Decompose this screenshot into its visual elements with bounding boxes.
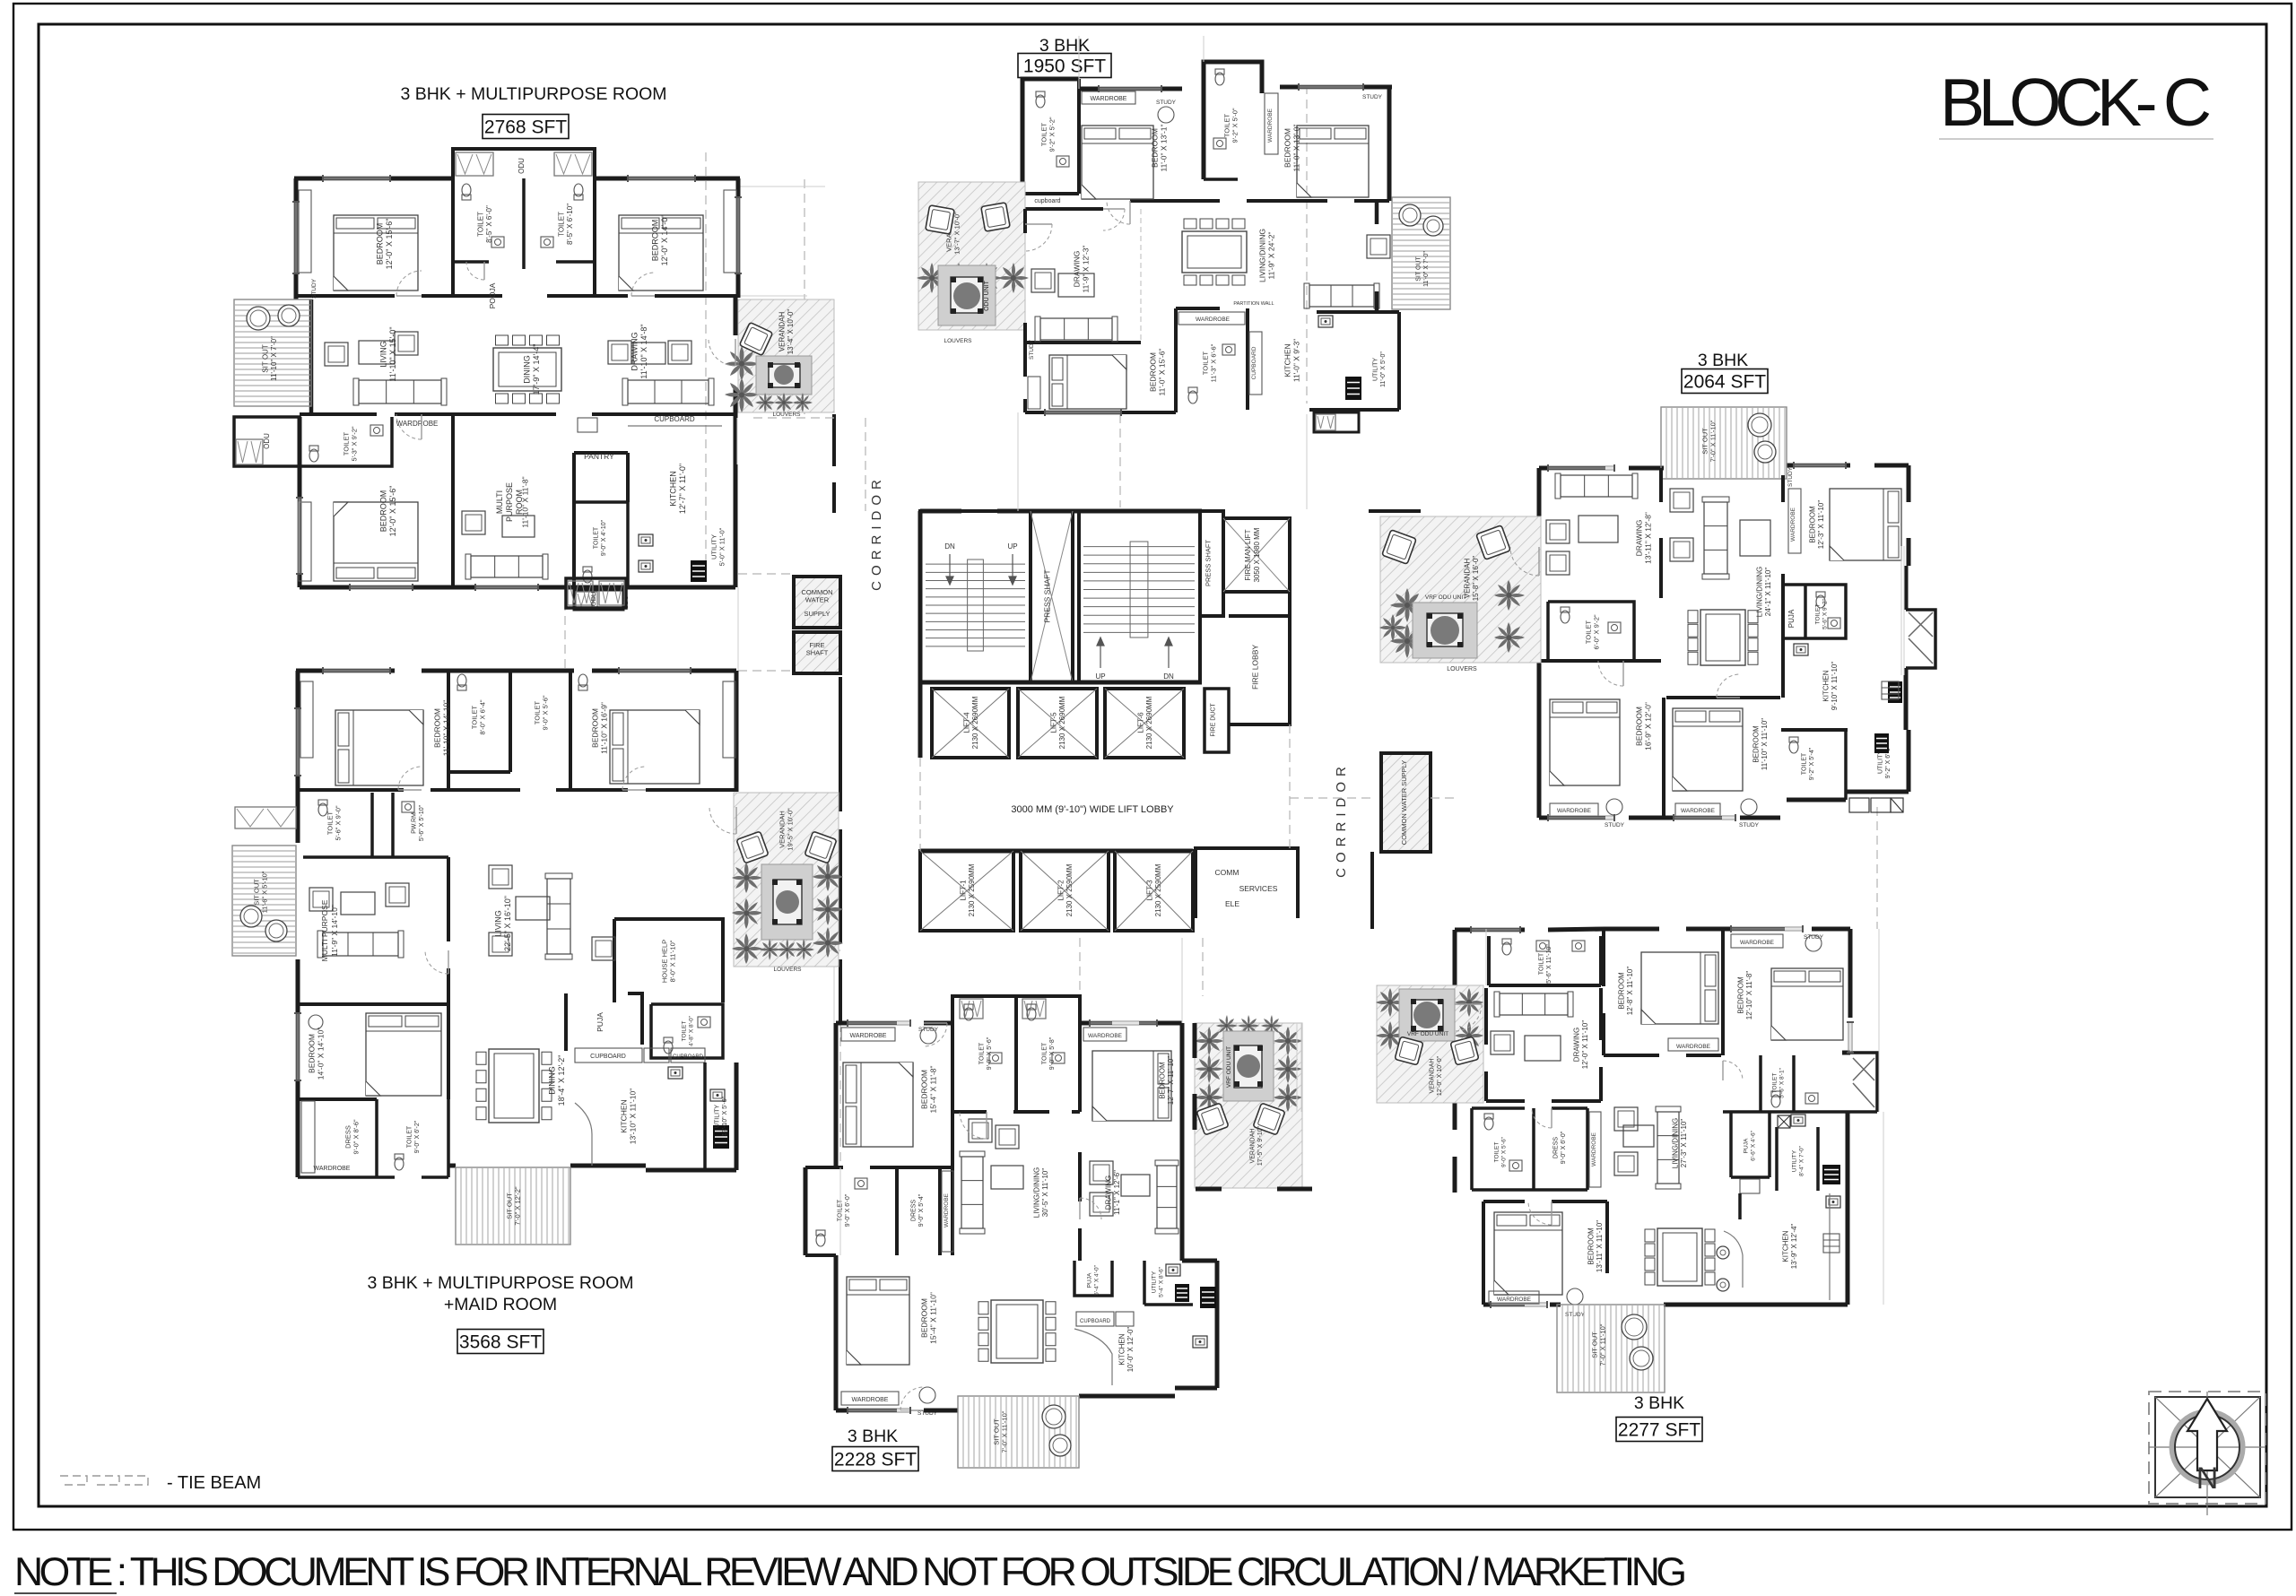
svg-text:WARDROBE: WARDROBE	[314, 1166, 351, 1172]
svg-text:11'-10" X 7'-0": 11'-10" X 7'-0"	[270, 336, 278, 381]
svg-text:3 BHK: 3 BHK	[848, 1427, 898, 1446]
svg-text:CUPBOARD: CUPBOARD	[1080, 1319, 1111, 1324]
svg-text:9'-0" X 5'-6": 9'-0" X 5'-6"	[1501, 1136, 1508, 1167]
svg-text:7'-0" X 11'-10": 7'-0" X 11'-10"	[1001, 1410, 1009, 1453]
svg-text:TOILET: TOILET	[343, 432, 351, 456]
svg-text:17'-5" X 9'-10": 17'-5" X 9'-10"	[1257, 1125, 1264, 1166]
svg-text:7'-0" X 11'-10": 7'-0" X 11'-10"	[1599, 1323, 1607, 1366]
svg-text:BEDROOM: BEDROOM	[1159, 1062, 1167, 1099]
svg-text:TOILET: TOILET	[407, 1125, 413, 1148]
svg-text:CUPBOARD: CUPBOARD	[1251, 346, 1257, 379]
svg-text:12'-7" X 11'-0": 12'-7" X 11'-0"	[678, 464, 687, 514]
svg-text:BEDROOM: BEDROOM	[651, 220, 660, 262]
svg-text:5'-3" X 9'-2": 5'-3" X 9'-2"	[351, 426, 359, 461]
svg-text:BEDROOM: BEDROOM	[1737, 976, 1745, 1014]
svg-text:1950 SFT: 1950 SFT	[1023, 56, 1106, 76]
svg-text:13'-10" X 5'-0": 13'-10" X 5'-0"	[722, 1096, 728, 1136]
svg-text:DRAWING: DRAWING	[631, 332, 639, 370]
svg-text:FIRE MAN LIFT: FIRE MAN LIFT	[1244, 529, 1252, 580]
svg-text:LIFT-3: LIFT-3	[1146, 880, 1154, 901]
svg-text:WARDROBE: WARDROBE	[1676, 1044, 1711, 1050]
svg-text:PUJA: PUJA	[1787, 609, 1796, 628]
svg-text:WARDROBE: WARDROBE	[944, 1193, 950, 1227]
svg-text:13'-10" X 11'-10": 13'-10" X 11'-10"	[629, 1089, 638, 1145]
svg-text:ODU UNIT: ODU UNIT	[984, 280, 990, 311]
svg-text:9'-10" X 11'-10": 9'-10" X 11'-10"	[1831, 662, 1839, 711]
svg-text:DRESS: DRESS	[911, 1200, 918, 1221]
svg-text:PRESS SHAFT: PRESS SHAFT	[1043, 569, 1052, 622]
svg-text:2130 X 2590MM: 2130 X 2590MM	[1065, 863, 1074, 916]
svg-text:8'-5" X 6'-0": 8'-5" X 6'-0"	[485, 205, 493, 243]
svg-text:2130 X 2590MM: 2130 X 2590MM	[1154, 863, 1162, 916]
svg-text:POOJA: POOJA	[488, 282, 497, 308]
svg-text:BEDROOM: BEDROOM	[433, 708, 442, 748]
svg-text:9'-2" X 5'-0": 9'-2" X 5'-0"	[1231, 108, 1239, 143]
svg-text:13'-7" X 10'-0": 13'-7" X 10'-0"	[953, 212, 961, 255]
svg-text:11'-1" X 12'-6": 11'-1" X 12'-6"	[1113, 1170, 1121, 1215]
svg-text:9'-0" X 6'-0": 9'-0" X 6'-0"	[845, 1193, 851, 1227]
svg-text:5'-6" X 9'-2": 5'-6" X 9'-2"	[1822, 598, 1829, 629]
svg-text:SIT OUT: SIT OUT	[253, 879, 261, 906]
svg-text:11'-10" X 14'-10": 11'-10" X 14'-10"	[442, 700, 451, 757]
svg-text:11'-9" X 12'-3": 11'-9" X 12'-3"	[1082, 245, 1091, 292]
svg-text:9'-2" X 5'-4": 9'-2" X 5'-4"	[1809, 747, 1815, 780]
svg-text:18'-4" X 12'-2": 18'-4" X 12'-2"	[557, 1055, 566, 1106]
svg-text:LIVING/DINING: LIVING/DINING	[1258, 229, 1267, 282]
svg-text:BEDROOM: BEDROOM	[920, 1298, 929, 1338]
svg-text:DINING: DINING	[523, 355, 532, 384]
svg-text:KITCHEN: KITCHEN	[1822, 670, 1831, 701]
svg-text:9'-2" X 5'-2": 9'-2" X 5'-2"	[1048, 117, 1057, 152]
svg-text:BLOCK- C: BLOCK- C	[1940, 65, 2212, 140]
svg-text:LIFT-1: LIFT-1	[960, 880, 968, 901]
svg-text:DRAWING: DRAWING	[1573, 1028, 1581, 1062]
svg-text:BEDROOM: BEDROOM	[376, 223, 385, 265]
svg-text:UP: UP	[1007, 542, 1017, 551]
svg-text:3 BHK: 3 BHK	[1634, 1393, 1684, 1413]
svg-text:LIVING: LIVING	[494, 910, 503, 937]
svg-text:CUPBOARD: CUPBOARD	[654, 415, 695, 423]
svg-text:3050 X 1980 MM: 3050 X 1980 MM	[1253, 527, 1261, 582]
svg-text:cupboard: cupboard	[1034, 198, 1060, 204]
svg-text:WARDROBE: WARDROBE	[1196, 317, 1231, 323]
svg-text:30'-5" X 11'-10": 30'-5" X 11'-10"	[1041, 1168, 1049, 1218]
svg-text:13'-11" X 11'-10": 13'-11" X 11'-10"	[1596, 1220, 1604, 1272]
svg-text:STUDY: STUDY	[1739, 822, 1760, 828]
svg-text:STUDY: STUDY	[1362, 94, 1383, 100]
svg-text:17'-9" X 14'-4": 17'-9" X 14'-4"	[532, 344, 541, 395]
svg-text:12'-0" X 14'-0": 12'-0" X 14'-0"	[660, 215, 669, 266]
svg-text:UTILITY: UTILITY	[1152, 1271, 1158, 1293]
svg-text:16'-9" X 12'-0": 16'-9" X 12'-0"	[1644, 702, 1653, 750]
svg-text:SIT OUT: SIT OUT	[1416, 256, 1422, 282]
svg-text:WARDROBE: WARDROBE	[1557, 808, 1592, 814]
svg-text:VERANDAH: VERANDAH	[1464, 559, 1472, 599]
svg-text:VRF ODU UNIT: VRF ODU UNIT	[1407, 1031, 1448, 1037]
svg-text:9'-0" X 5'-6": 9'-0" X 5'-6"	[542, 695, 550, 730]
svg-text:11'-3" X 6'-6": 11'-3" X 6'-6"	[1210, 343, 1218, 382]
svg-text:12'-0" X 10'-0": 12'-0" X 10'-0"	[1437, 1055, 1443, 1096]
svg-text:PW.RM: PW.RM	[412, 812, 418, 834]
svg-text:BEDROOM: BEDROOM	[1587, 1227, 1596, 1265]
svg-text:DRAWING: DRAWING	[1635, 520, 1644, 557]
svg-text:WARDROBE: WARDROBE	[852, 1397, 889, 1403]
svg-text:BEDROOM: BEDROOM	[1151, 128, 1160, 168]
svg-text:WARDROBE: WARDROBE	[1088, 1033, 1123, 1039]
svg-text:STUDY: STUDY	[1029, 339, 1035, 360]
svg-text:11'-10" X 11'-8": 11'-10" X 11'-8"	[521, 476, 530, 527]
svg-text:UTILITY: UTILITY	[710, 534, 718, 559]
svg-text:11'-10" X 11'-10": 11'-10" X 11'-10"	[1761, 718, 1769, 770]
svg-text:KITCHEN: KITCHEN	[620, 1099, 629, 1132]
svg-text:LIFT-5: LIFT-5	[1050, 712, 1058, 733]
svg-text:SIT OUT: SIT OUT	[1591, 1331, 1599, 1358]
svg-text:BEDROOM: BEDROOM	[379, 490, 388, 533]
svg-text:13'-11" X 12'-8": 13'-11" X 12'-8"	[1644, 512, 1653, 564]
svg-text:TOILET: TOILET	[979, 1042, 986, 1064]
svg-text:VERANDAH: VERANDAH	[778, 312, 787, 352]
svg-text:CORRIDOR: CORRIDOR	[869, 474, 884, 591]
svg-text:TOILET: TOILET	[1815, 604, 1822, 625]
svg-text:8'-0" X 11'-10": 8'-0" X 11'-10"	[669, 940, 677, 982]
svg-text:14'-0" X 14'-10": 14'-0" X 14'-10"	[317, 1028, 326, 1080]
svg-text:5'-6" X 5'-10": 5'-6" X 5'-10"	[419, 804, 425, 841]
svg-text:TOILET: TOILET	[1802, 752, 1808, 775]
svg-text:KITCHEN: KITCHEN	[669, 471, 678, 507]
svg-text:DN: DN	[1163, 672, 1174, 681]
svg-text:COMMON WATER SUPPLY: COMMON WATER SUPPLY	[1400, 760, 1408, 845]
svg-text:11'-10" X 15'-0": 11'-10" X 15'-0"	[388, 326, 397, 381]
svg-text:DINING: DINING	[548, 1066, 557, 1095]
svg-text:9'-0" X 4'-10": 9'-0" X 4'-10"	[601, 519, 607, 556]
svg-text:LIVING/DINING: LIVING/DINING	[1672, 1118, 1680, 1168]
svg-text:8'-5" X 6'-10": 8'-5" X 6'-10"	[566, 204, 574, 245]
svg-text:SUPPLY: SUPPLY	[804, 610, 830, 618]
svg-text:PURPOSE: PURPOSE	[505, 482, 514, 522]
svg-text:DRESS: DRESS	[344, 1125, 352, 1149]
svg-text:2277 SFT: 2277 SFT	[1618, 1419, 1700, 1440]
svg-text:TOILET: TOILET	[1223, 114, 1231, 138]
svg-text:8'-0" X 6'-4": 8'-0" X 6'-4"	[479, 699, 487, 734]
svg-text:WARDROBE: WARDROBE	[1681, 808, 1716, 814]
svg-text:KITCHEN: KITCHEN	[1782, 1230, 1790, 1262]
svg-text:PARTITION WALL: PARTITION WALL	[1233, 301, 1274, 307]
svg-text:KITCHEN: KITCHEN	[1118, 1333, 1126, 1365]
svg-text:11'-9" X 24'-2": 11'-9" X 24'-2"	[1267, 231, 1276, 279]
svg-text:TOILET: TOILET	[326, 811, 335, 836]
svg-text:11'-0" X 9'-3": 11'-0" X 9'-3"	[1292, 339, 1301, 382]
svg-text:2768 SFT: 2768 SFT	[484, 117, 567, 137]
svg-text:11'-9" X 14'-10": 11'-9" X 14'-10"	[330, 905, 339, 957]
svg-text:12'-7" X 11'-10": 12'-7" X 11'-10"	[1167, 1056, 1175, 1106]
svg-text:WARDROBE: WARDROBE	[1267, 108, 1274, 143]
svg-text:11'-0" X 7'-0": 11'-0" X 7'-0"	[1423, 251, 1430, 287]
svg-text:+MAID ROOM: +MAID ROOM	[444, 1295, 557, 1314]
svg-text:SERVICES: SERVICES	[1239, 884, 1278, 893]
svg-text:CUPBOARD: CUPBOARD	[590, 1054, 626, 1060]
svg-text:15'-8" X 16'-0": 15'-8" X 16'-0"	[1472, 556, 1480, 602]
svg-text:KITCHEN: KITCHEN	[1283, 343, 1292, 377]
svg-text:15'-4" X 11'-8": 15'-4" X 11'-8"	[929, 1065, 938, 1113]
svg-text:LIFT-6: LIFT-6	[1137, 712, 1145, 733]
svg-text:BEDROOM: BEDROOM	[1149, 352, 1158, 392]
svg-text:10'-0" X 12'-0": 10'-0" X 12'-0"	[1126, 1327, 1135, 1373]
svg-text:9'-0" X 5'-4": 9'-0" X 5'-4"	[918, 1193, 925, 1227]
svg-text:12'-0" X 15'-6": 12'-0" X 15'-6"	[385, 219, 394, 270]
svg-text:27'-3" X 11'-10": 27'-3" X 11'-10"	[1680, 1119, 1688, 1168]
svg-text:22'-5" X 16'-10": 22'-5" X 16'-10"	[503, 896, 512, 951]
svg-text:VERANDAH: VERANDAH	[778, 811, 787, 848]
svg-text:DRESS: DRESS	[1553, 1137, 1560, 1158]
svg-text:LIVING/DINING: LIVING/DINING	[1756, 567, 1764, 617]
svg-text:BEDROOM: BEDROOM	[591, 708, 600, 748]
svg-text:11'-10" X 16'-9": 11'-10" X 16'-9"	[600, 702, 609, 754]
svg-text:5'-0" X 11'-0": 5'-0" X 11'-0"	[718, 527, 726, 566]
svg-text:SIT OUT: SIT OUT	[262, 344, 270, 373]
svg-text:PANTRY: PANTRY	[584, 452, 614, 461]
svg-text:MULTI PURPOSE: MULTI PURPOSE	[320, 899, 329, 961]
svg-text:TOILET: TOILET	[1040, 123, 1048, 147]
svg-text:9'-0" X 5'-8": 9'-0" X 5'-8"	[1049, 1037, 1056, 1070]
svg-text:HOUSE HELP: HOUSE HELP	[661, 940, 669, 983]
svg-text:PRESS SHAFT: PRESS SHAFT	[1205, 540, 1213, 587]
svg-text:4'-8" X 8'-0": 4'-8" X 8'-0"	[689, 1015, 695, 1046]
svg-text:5'-6" X 11'-10": 5'-6" X 11'-10"	[1546, 944, 1552, 984]
svg-text:5'-6" X 8'-1": 5'-6" X 8'-1"	[1779, 1067, 1786, 1098]
svg-text:MULTI: MULTI	[495, 490, 504, 514]
svg-text:TOILET: TOILET	[1042, 1042, 1048, 1064]
svg-text:STUDY: STUDY	[1156, 100, 1177, 106]
svg-text:STUDY: STUDY	[1787, 466, 1794, 487]
svg-text:SIT OUT: SIT OUT	[506, 1193, 514, 1219]
svg-text:9'-0" X 6'-2": 9'-0" X 6'-2"	[414, 1120, 421, 1153]
svg-text:TOILET: TOILET	[558, 212, 566, 237]
svg-text:5'-6" X 9'-0": 5'-6" X 9'-0"	[335, 805, 343, 840]
svg-text:5'-4" X 4'-0": 5'-4" X 4'-0"	[1094, 1264, 1100, 1296]
svg-text:11'-0" X 13'-0": 11'-0" X 13'-0"	[1292, 124, 1301, 171]
svg-text:LIFT-4: LIFT-4	[963, 712, 971, 733]
svg-text:WARDROBE: WARDROBE	[1790, 507, 1796, 542]
svg-text:FIRE DUCT: FIRE DUCT	[1211, 703, 1217, 737]
svg-text:2228 SFT: 2228 SFT	[834, 1449, 917, 1470]
svg-text:12'-0" X 15'-6": 12'-0" X 15'-6"	[388, 486, 397, 537]
svg-text:STUDY: STUDY	[1804, 934, 1824, 941]
svg-text:BEDROOM: BEDROOM	[1283, 128, 1292, 168]
svg-text:BEDROOM: BEDROOM	[1635, 707, 1644, 746]
svg-text:N: N	[2196, 1462, 2219, 1496]
svg-text:3000 MM (9'-10") WIDE LIFT LOB: 3000 MM (9'-10") WIDE LIFT LOBBY	[1011, 804, 1174, 815]
svg-text:WARDROBE: WARDROBE	[1091, 96, 1127, 102]
svg-text:SIT OUT: SIT OUT	[1701, 428, 1709, 455]
svg-text:2130 X 2690MM: 2130 X 2690MM	[1058, 696, 1066, 749]
svg-text:TOILET: TOILET	[471, 706, 479, 730]
svg-text:LIFT-2: LIFT-2	[1057, 880, 1065, 901]
svg-text:9'-0" X 5'-6": 9'-0" X 5'-6"	[987, 1037, 993, 1070]
svg-text:11'-0" X 15'-6": 11'-0" X 15'-6"	[1158, 348, 1167, 395]
svg-text:6'-0" X 9'-2": 6'-0" X 9'-2"	[1593, 614, 1601, 649]
svg-text:VRF ODU UNIT: VRF ODU UNIT	[1425, 594, 1466, 601]
svg-text:PUJA: PUJA	[1087, 1272, 1093, 1288]
svg-text:DN: DN	[944, 542, 955, 551]
svg-text:11'-6" X 5'-10": 11'-6" X 5'-10"	[261, 871, 269, 913]
svg-text:ELE: ELE	[1225, 899, 1239, 908]
svg-text:WARDROBE: WARDROBE	[396, 420, 439, 428]
svg-text:3 BHK + MULTIPURPOSE ROOM: 3 BHK + MULTIPURPOSE ROOM	[400, 84, 666, 104]
svg-text:TOILET: TOILET	[1539, 952, 1545, 975]
svg-text:7'-0" X 12'-2": 7'-0" X 12'-2"	[514, 1186, 522, 1226]
svg-text:BEDROOM: BEDROOM	[1809, 506, 1817, 543]
svg-text:DRAWING: DRAWING	[1073, 251, 1082, 288]
svg-text:FIRE LOBBY: FIRE LOBBY	[1251, 645, 1260, 690]
svg-text:- TIE BEAM: - TIE BEAM	[167, 1473, 261, 1493]
svg-text:SIT OUT: SIT OUT	[993, 1418, 1001, 1445]
svg-text:11'-0" X 5'-0": 11'-0" X 5'-0"	[1380, 351, 1387, 387]
svg-text:3 BHK + MULTIPURPOSE ROOM: 3 BHK + MULTIPURPOSE ROOM	[367, 1273, 633, 1293]
svg-text:LOUVERS: LOUVERS	[944, 338, 972, 344]
svg-text:UTILITY: UTILITY	[1878, 750, 1884, 774]
svg-text:UTILITY: UTILITY	[1373, 358, 1379, 381]
svg-text:5'-4" X 8'-6": 5'-4" X 8'-6"	[1159, 1266, 1165, 1297]
svg-text:ODU: ODU	[589, 592, 597, 607]
svg-text:TOILET: TOILET	[1772, 1073, 1779, 1094]
svg-text:DRAWING: DRAWING	[1105, 1175, 1113, 1210]
svg-text:13'-9" X 12'-4": 13'-9" X 12'-4"	[1790, 1224, 1798, 1270]
svg-text:TOILET: TOILET	[1494, 1142, 1500, 1163]
svg-text:CORRIDOR: CORRIDOR	[1334, 761, 1349, 878]
svg-text:STUDY: STUDY	[311, 278, 317, 299]
svg-text:UTILITY: UTILITY	[715, 1105, 721, 1128]
svg-text:3568 SFT: 3568 SFT	[459, 1331, 542, 1352]
svg-text:BEDROOM: BEDROOM	[1618, 972, 1626, 1010]
svg-text:BEDROOM: BEDROOM	[920, 1070, 929, 1109]
svg-text:LIVING/DINING: LIVING/DINING	[1033, 1167, 1041, 1218]
svg-text:TOILET: TOILET	[477, 212, 485, 237]
svg-text:WARDROBE: WARDROBE	[1740, 940, 1775, 946]
svg-text:ODU: ODU	[263, 433, 271, 449]
svg-text:BEDROOM: BEDROOM	[1752, 725, 1761, 763]
svg-text:LIVING: LIVING	[379, 341, 388, 368]
svg-text:2130 X 2590MM: 2130 X 2590MM	[968, 863, 976, 916]
svg-text:9'-0" X 6'-0": 9'-0" X 6'-0"	[1561, 1131, 1567, 1164]
svg-text:WATER: WATER	[805, 596, 830, 604]
svg-text:COMM: COMM	[1215, 868, 1239, 877]
svg-text:TOILET: TOILET	[534, 701, 542, 725]
svg-text:STUDY: STUDY	[1605, 822, 1625, 828]
svg-text:WARDROBE: WARDROBE	[1497, 1297, 1532, 1303]
svg-text:CUPBOARD: CUPBOARD	[673, 1054, 704, 1060]
svg-text:VRF ODU UNIT: VRF ODU UNIT	[1226, 1046, 1232, 1088]
svg-text:UP: UP	[1095, 672, 1105, 681]
svg-text:WARDROBE: WARDROBE	[850, 1033, 887, 1039]
svg-text:2130 X 2690MM: 2130 X 2690MM	[1145, 696, 1153, 749]
svg-text:2130 X 2690MM: 2130 X 2690MM	[971, 696, 979, 749]
svg-text:LOUVERS: LOUVERS	[1447, 666, 1477, 672]
svg-text:19'-5" X 10'-0": 19'-5" X 10'-0"	[787, 808, 795, 851]
svg-text:TOILET: TOILET	[1585, 620, 1593, 645]
svg-text:12'-3" X 11'-10": 12'-3" X 11'-10"	[1817, 500, 1825, 550]
svg-text:11'-10" X 14'-8": 11'-10" X 14'-8"	[639, 324, 648, 378]
svg-text:TOILET: TOILET	[682, 1021, 688, 1042]
svg-text:15'-4" X 11'-10": 15'-4" X 11'-10"	[929, 1292, 938, 1344]
svg-text:STUDY: STUDY	[918, 1027, 939, 1033]
svg-text:13'-4" X 10'-0": 13'-4" X 10'-0"	[787, 309, 795, 355]
svg-text:9'-0" X 8'-6": 9'-0" X 8'-6"	[352, 1119, 361, 1154]
svg-text:24'-1" X 11'-10": 24'-1" X 11'-10"	[1764, 568, 1772, 617]
svg-text:12'-0" X 11'-10": 12'-0" X 11'-10"	[1581, 1020, 1589, 1070]
svg-text:ODU: ODU	[517, 158, 526, 174]
svg-text:LOUVERS: LOUVERS	[772, 412, 801, 418]
svg-text:2064 SFT: 2064 SFT	[1683, 371, 1766, 392]
svg-text:11'-0" X 13'-1": 11'-0" X 13'-1"	[1160, 124, 1169, 171]
svg-text:LOUVERS: LOUVERS	[773, 967, 802, 973]
svg-text:WARDROBE: WARDROBE	[1591, 1132, 1597, 1167]
svg-text:PUJA: PUJA	[596, 1012, 604, 1032]
svg-text:UTILITY: UTILITY	[1792, 1149, 1798, 1172]
svg-text:6'-6" X 4'-6": 6'-6" X 4'-6"	[1751, 1130, 1757, 1161]
svg-text:NOTE : THIS DOCUMENT IS FOR IN: NOTE : THIS DOCUMENT IS FOR INTERNAL REV…	[14, 1550, 1687, 1594]
svg-text:BEDROOM: BEDROOM	[308, 1034, 317, 1073]
svg-text:TOILET: TOILET	[1202, 351, 1210, 376]
svg-text:8'-4" X 7'-0": 8'-4" X 7'-0"	[1799, 1145, 1805, 1176]
svg-text:PUJA: PUJA	[1744, 1138, 1750, 1153]
svg-text:7'-0" X 11'-10": 7'-0" X 11'-10"	[1709, 420, 1718, 462]
svg-text:12'-8" X 11'-10": 12'-8" X 11'-10"	[1626, 967, 1634, 1016]
svg-text:VERANDAH: VERANDAH	[1430, 1059, 1436, 1094]
svg-text:VERANDAH: VERANDAH	[1250, 1129, 1257, 1164]
svg-text:12'-10" X 11'-8": 12'-10" X 11'-8"	[1745, 971, 1753, 1020]
svg-text:SHAFT: SHAFT	[806, 649, 829, 657]
svg-text:TOILET: TOILET	[594, 526, 600, 549]
svg-text:3 BHK: 3 BHK	[1698, 351, 1748, 370]
